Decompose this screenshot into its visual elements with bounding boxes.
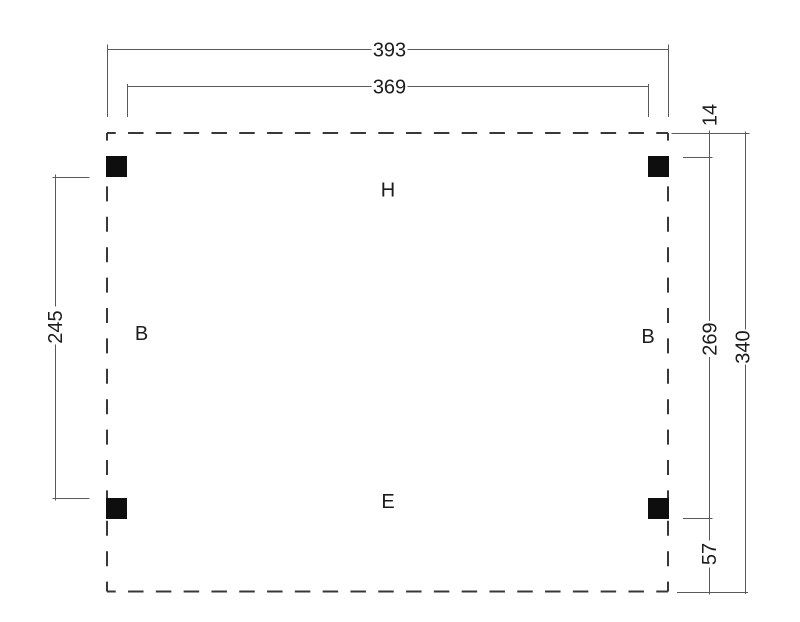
svg-text:B: B — [135, 323, 148, 345]
svg-text:245: 245 — [45, 310, 67, 343]
svg-text:340: 340 — [733, 330, 755, 363]
svg-text:E: E — [381, 491, 394, 513]
svg-text:B: B — [641, 326, 654, 348]
svg-text:14: 14 — [700, 104, 722, 126]
svg-text:369: 369 — [373, 77, 406, 99]
svg-text:H: H — [381, 180, 395, 202]
svg-text:393: 393 — [373, 40, 406, 62]
svg-text:57: 57 — [699, 543, 721, 565]
svg-text:269: 269 — [700, 322, 722, 355]
